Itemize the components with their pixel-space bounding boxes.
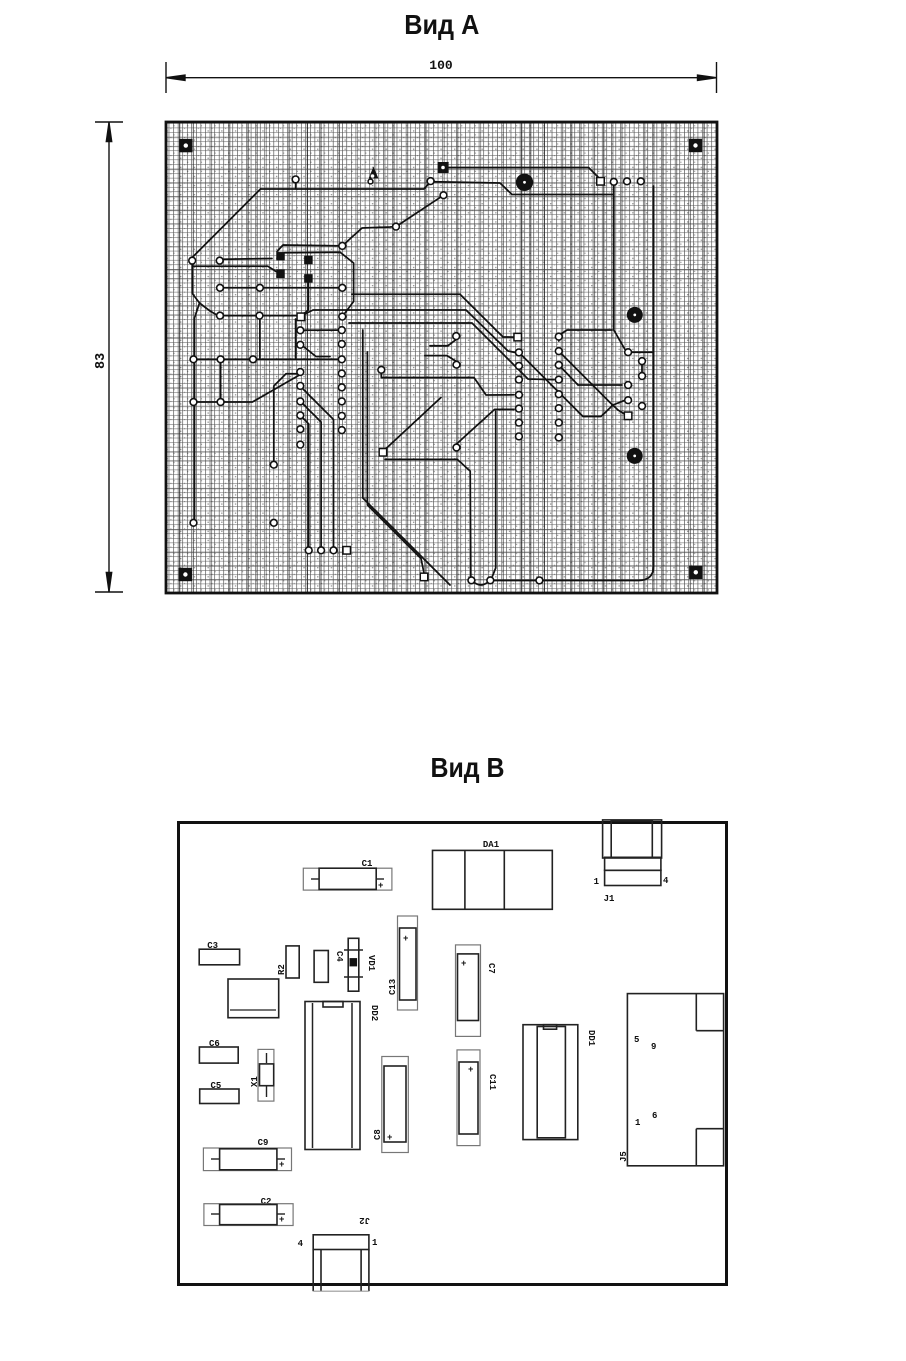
svg-text:5: 5 bbox=[634, 1035, 639, 1045]
svg-text:C8: C8 bbox=[373, 1129, 383, 1140]
svg-text:6: 6 bbox=[652, 1111, 657, 1121]
svg-text:4: 4 bbox=[298, 1239, 304, 1249]
svg-text:C11: C11 bbox=[487, 1074, 497, 1091]
svg-text:+: + bbox=[461, 959, 466, 969]
svg-text:C13: C13 bbox=[388, 979, 398, 995]
svg-text:1: 1 bbox=[594, 877, 600, 887]
svg-text:J1: J1 bbox=[604, 894, 615, 904]
svg-text:4: 4 bbox=[663, 876, 669, 886]
svg-text:1: 1 bbox=[635, 1118, 641, 1128]
svg-text:+: + bbox=[279, 1160, 284, 1170]
svg-text:DA1: DA1 bbox=[483, 840, 500, 850]
svg-text:C9: C9 bbox=[258, 1138, 269, 1148]
svg-text:+: + bbox=[387, 1133, 392, 1143]
svg-text:DD2: DD2 bbox=[369, 1005, 379, 1021]
svg-text:VD1: VD1 bbox=[366, 955, 376, 972]
svg-text:+: + bbox=[279, 1215, 284, 1225]
svg-text:+: + bbox=[468, 1065, 473, 1075]
svg-text:X1: X1 bbox=[250, 1076, 260, 1087]
svg-text:83: 83 bbox=[94, 353, 109, 369]
svg-text:C4: C4 bbox=[334, 951, 344, 962]
svg-text:+: + bbox=[378, 881, 383, 891]
svg-text:100: 100 bbox=[429, 58, 453, 73]
svg-text:C2: C2 bbox=[261, 1197, 272, 1207]
svg-text:Вид А: Вид А bbox=[404, 9, 479, 40]
svg-text:9: 9 bbox=[651, 1042, 656, 1052]
svg-text:DD1: DD1 bbox=[586, 1030, 596, 1047]
svg-text:C7: C7 bbox=[486, 963, 496, 974]
svg-text:+: + bbox=[403, 934, 408, 944]
svg-text:J2: J2 bbox=[359, 1215, 370, 1225]
svg-text:1: 1 bbox=[372, 1238, 378, 1248]
svg-text:R2: R2 bbox=[277, 964, 287, 975]
svg-text:Вид В: Вид В bbox=[431, 752, 505, 783]
svg-text:J5: J5 bbox=[619, 1151, 629, 1162]
